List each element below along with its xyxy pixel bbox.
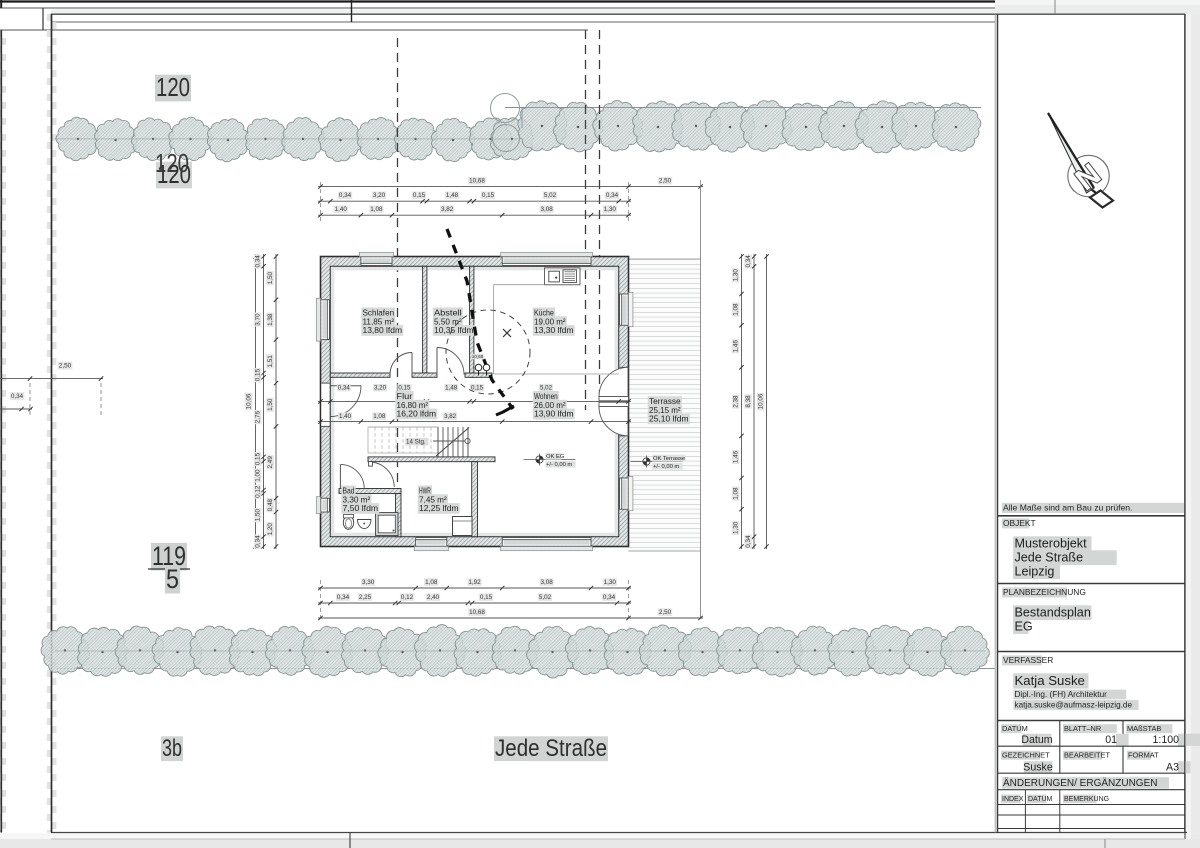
svg-text:7,50 lfdm: 7,50 lfdm	[343, 503, 379, 513]
svg-text:0,34: 0,34	[255, 535, 262, 548]
svg-text:0,15: 0,15	[471, 385, 484, 392]
svg-text:GEZEICHNET: GEZEICHNET	[1002, 751, 1050, 760]
svg-text:5: 5	[166, 564, 179, 594]
svg-text:13,80 lfdm: 13,80 lfdm	[363, 325, 403, 335]
svg-text:+/- 0,00 m: +/- 0,00 m	[653, 464, 679, 470]
svg-text:2,40: 2,40	[427, 594, 440, 601]
svg-text:+/- 0,00 m: +/- 0,00 m	[546, 462, 572, 468]
svg-text:FORMAT: FORMAT	[1128, 751, 1159, 760]
svg-text:13,90 lfdm: 13,90 lfdm	[534, 409, 574, 419]
svg-text:3,20: 3,20	[373, 192, 386, 199]
svg-text:13,30 lfdm: 13,30 lfdm	[534, 325, 574, 335]
svg-text:DATUM: DATUM	[1002, 724, 1028, 733]
svg-text:3,82: 3,82	[441, 206, 454, 213]
svg-text:1,50: 1,50	[267, 272, 274, 285]
svg-text:Musterobjekt: Musterobjekt	[1015, 537, 1088, 551]
svg-text:1,30: 1,30	[604, 206, 617, 213]
svg-text:1,46: 1,46	[732, 450, 739, 463]
svg-text:0,34: 0,34	[11, 393, 24, 400]
svg-text:Dipl.-Ing. (FH) Architektur: Dipl.-Ing. (FH) Architektur	[1015, 690, 1108, 699]
svg-text:2,49: 2,49	[267, 456, 274, 469]
svg-text:1,40: 1,40	[339, 413, 352, 420]
svg-text:120: 120	[156, 72, 190, 102]
svg-text:5,02: 5,02	[539, 594, 552, 601]
svg-text:0,12: 0,12	[255, 485, 262, 498]
svg-text:10,68: 10,68	[469, 178, 485, 185]
svg-text:14 Stg.: 14 Stg.	[406, 439, 426, 446]
svg-text:DATUM: DATUM	[1028, 796, 1053, 803]
svg-text:OBJEKT: OBJEKT	[1003, 518, 1036, 528]
svg-text:3b: 3b	[162, 735, 182, 762]
svg-text:1,92: 1,92	[468, 579, 481, 586]
svg-text:10,06: 10,06	[758, 393, 765, 409]
svg-text:120: 120	[155, 148, 189, 178]
svg-text:1,48: 1,48	[445, 385, 458, 392]
svg-text:PLANBEZEICHNUNG: PLANBEZEICHNUNG	[1003, 587, 1086, 597]
svg-text:1,20: 1,20	[267, 523, 274, 536]
svg-text:1,46: 1,46	[732, 340, 739, 353]
svg-text:1,08: 1,08	[733, 303, 740, 316]
svg-text:1,48: 1,48	[446, 192, 459, 199]
svg-text:Leipzig: Leipzig	[1015, 565, 1055, 579]
svg-text:1,08: 1,08	[425, 579, 438, 586]
svg-text:katja.suske@aufmasz-leipzig.de: katja.suske@aufmasz-leipzig.de	[1015, 701, 1133, 710]
svg-text:2,50: 2,50	[59, 363, 72, 370]
svg-text:2,38: 2,38	[733, 395, 740, 408]
svg-text:0,12: 0,12	[401, 594, 414, 601]
svg-text:2,25: 2,25	[359, 594, 372, 601]
svg-text:0,15: 0,15	[480, 594, 493, 601]
svg-text:3,30: 3,30	[362, 579, 375, 586]
svg-text:1,30: 1,30	[732, 269, 739, 282]
svg-text:0,15: 0,15	[254, 369, 261, 382]
svg-text:OK EG: OK EG	[546, 454, 565, 460]
svg-text:8,38: 8,38	[745, 395, 752, 408]
svg-text:ÄNDERUNGEN/ ERGÄNZUNGEN: ÄNDERUNGEN/ ERGÄNZUNGEN	[1003, 777, 1157, 789]
svg-text:BEMERKUNG: BEMERKUNG	[1064, 796, 1109, 803]
svg-text:1,40: 1,40	[335, 206, 348, 213]
svg-text:0,34: 0,34	[255, 255, 262, 268]
svg-text:BLATT–NR: BLATT–NR	[1064, 724, 1101, 733]
svg-text:1,38: 1,38	[267, 313, 274, 326]
svg-text:Katja Suske: Katja Suske	[1015, 673, 1085, 688]
svg-text:3,70: 3,70	[254, 313, 261, 326]
svg-text:VERFASSER: VERFASSER	[1003, 655, 1053, 665]
svg-text:1,30: 1,30	[604, 579, 617, 586]
svg-text:10,68: 10,68	[469, 609, 485, 616]
svg-text:INDEX: INDEX	[1002, 796, 1024, 803]
svg-text:Jede Straße: Jede Straße	[1015, 551, 1084, 565]
svg-text:0,34: 0,34	[606, 192, 619, 199]
svg-text:3,20: 3,20	[374, 385, 387, 392]
svg-text:Suske: Suske	[1023, 762, 1053, 774]
svg-text:2,76: 2,76	[255, 410, 262, 423]
svg-text:0,34: 0,34	[338, 385, 351, 392]
svg-text:1,51: 1,51	[267, 355, 274, 368]
svg-text:10,35 lfdm: 10,35 lfdm	[434, 325, 474, 335]
svg-text:5,02: 5,02	[544, 192, 557, 199]
svg-text:12,25 lfdm: 12,25 lfdm	[419, 503, 459, 513]
svg-text:1,08: 1,08	[373, 413, 386, 420]
svg-text:0,48: 0,48	[267, 498, 274, 511]
svg-text:2,50: 2,50	[659, 178, 672, 185]
svg-text:16,20 lfdm: 16,20 lfdm	[397, 409, 437, 419]
svg-text:3,08: 3,08	[540, 579, 553, 586]
svg-text:1,30: 1,30	[733, 521, 740, 534]
svg-text:2,50: 2,50	[659, 609, 672, 616]
svg-text:BEARBEITET: BEARBEITET	[1064, 751, 1110, 760]
svg-text:MAßSTAB: MAßSTAB	[1127, 724, 1161, 733]
svg-text:1,00: 1,00	[255, 469, 262, 482]
svg-text:0,15: 0,15	[482, 192, 495, 199]
svg-text:0,15: 0,15	[413, 192, 426, 199]
svg-text:Jede Straße: Jede Straße	[495, 735, 607, 762]
svg-text:1,08: 1,08	[733, 487, 740, 500]
svg-text:Alle Maße sind am Bau zu prüfe: Alle Maße sind am Bau zu prüfen.	[1003, 503, 1132, 513]
svg-text:0,34: 0,34	[745, 535, 752, 548]
svg-text:Bestandsplan: Bestandsplan	[1015, 606, 1091, 620]
svg-text:3,08: 3,08	[540, 206, 553, 213]
svg-text:25,10 lfdm: 25,10 lfdm	[649, 414, 689, 424]
svg-text:OK Terrasse: OK Terrasse	[653, 456, 685, 462]
svg-text:0,34: 0,34	[745, 255, 752, 268]
svg-text:0,34: 0,34	[603, 594, 616, 601]
svg-text:10,68: 10,68	[472, 354, 484, 359]
svg-text:1,08: 1,08	[370, 206, 383, 213]
svg-text:0,34: 0,34	[337, 594, 350, 601]
svg-text:3,82: 3,82	[444, 413, 457, 420]
svg-text:EG: EG	[1015, 620, 1033, 634]
svg-text:0,34: 0,34	[339, 192, 352, 199]
svg-text:10,06: 10,06	[246, 393, 253, 409]
svg-text:0,15: 0,15	[254, 452, 261, 465]
svg-text:1,50: 1,50	[267, 398, 274, 411]
svg-text:1,50: 1,50	[255, 508, 262, 521]
svg-text:1:100: 1:100	[1152, 734, 1179, 746]
svg-text:Datum: Datum	[1021, 734, 1052, 746]
svg-text:A3: A3	[1166, 762, 1179, 774]
svg-text:01: 01	[1105, 734, 1117, 746]
